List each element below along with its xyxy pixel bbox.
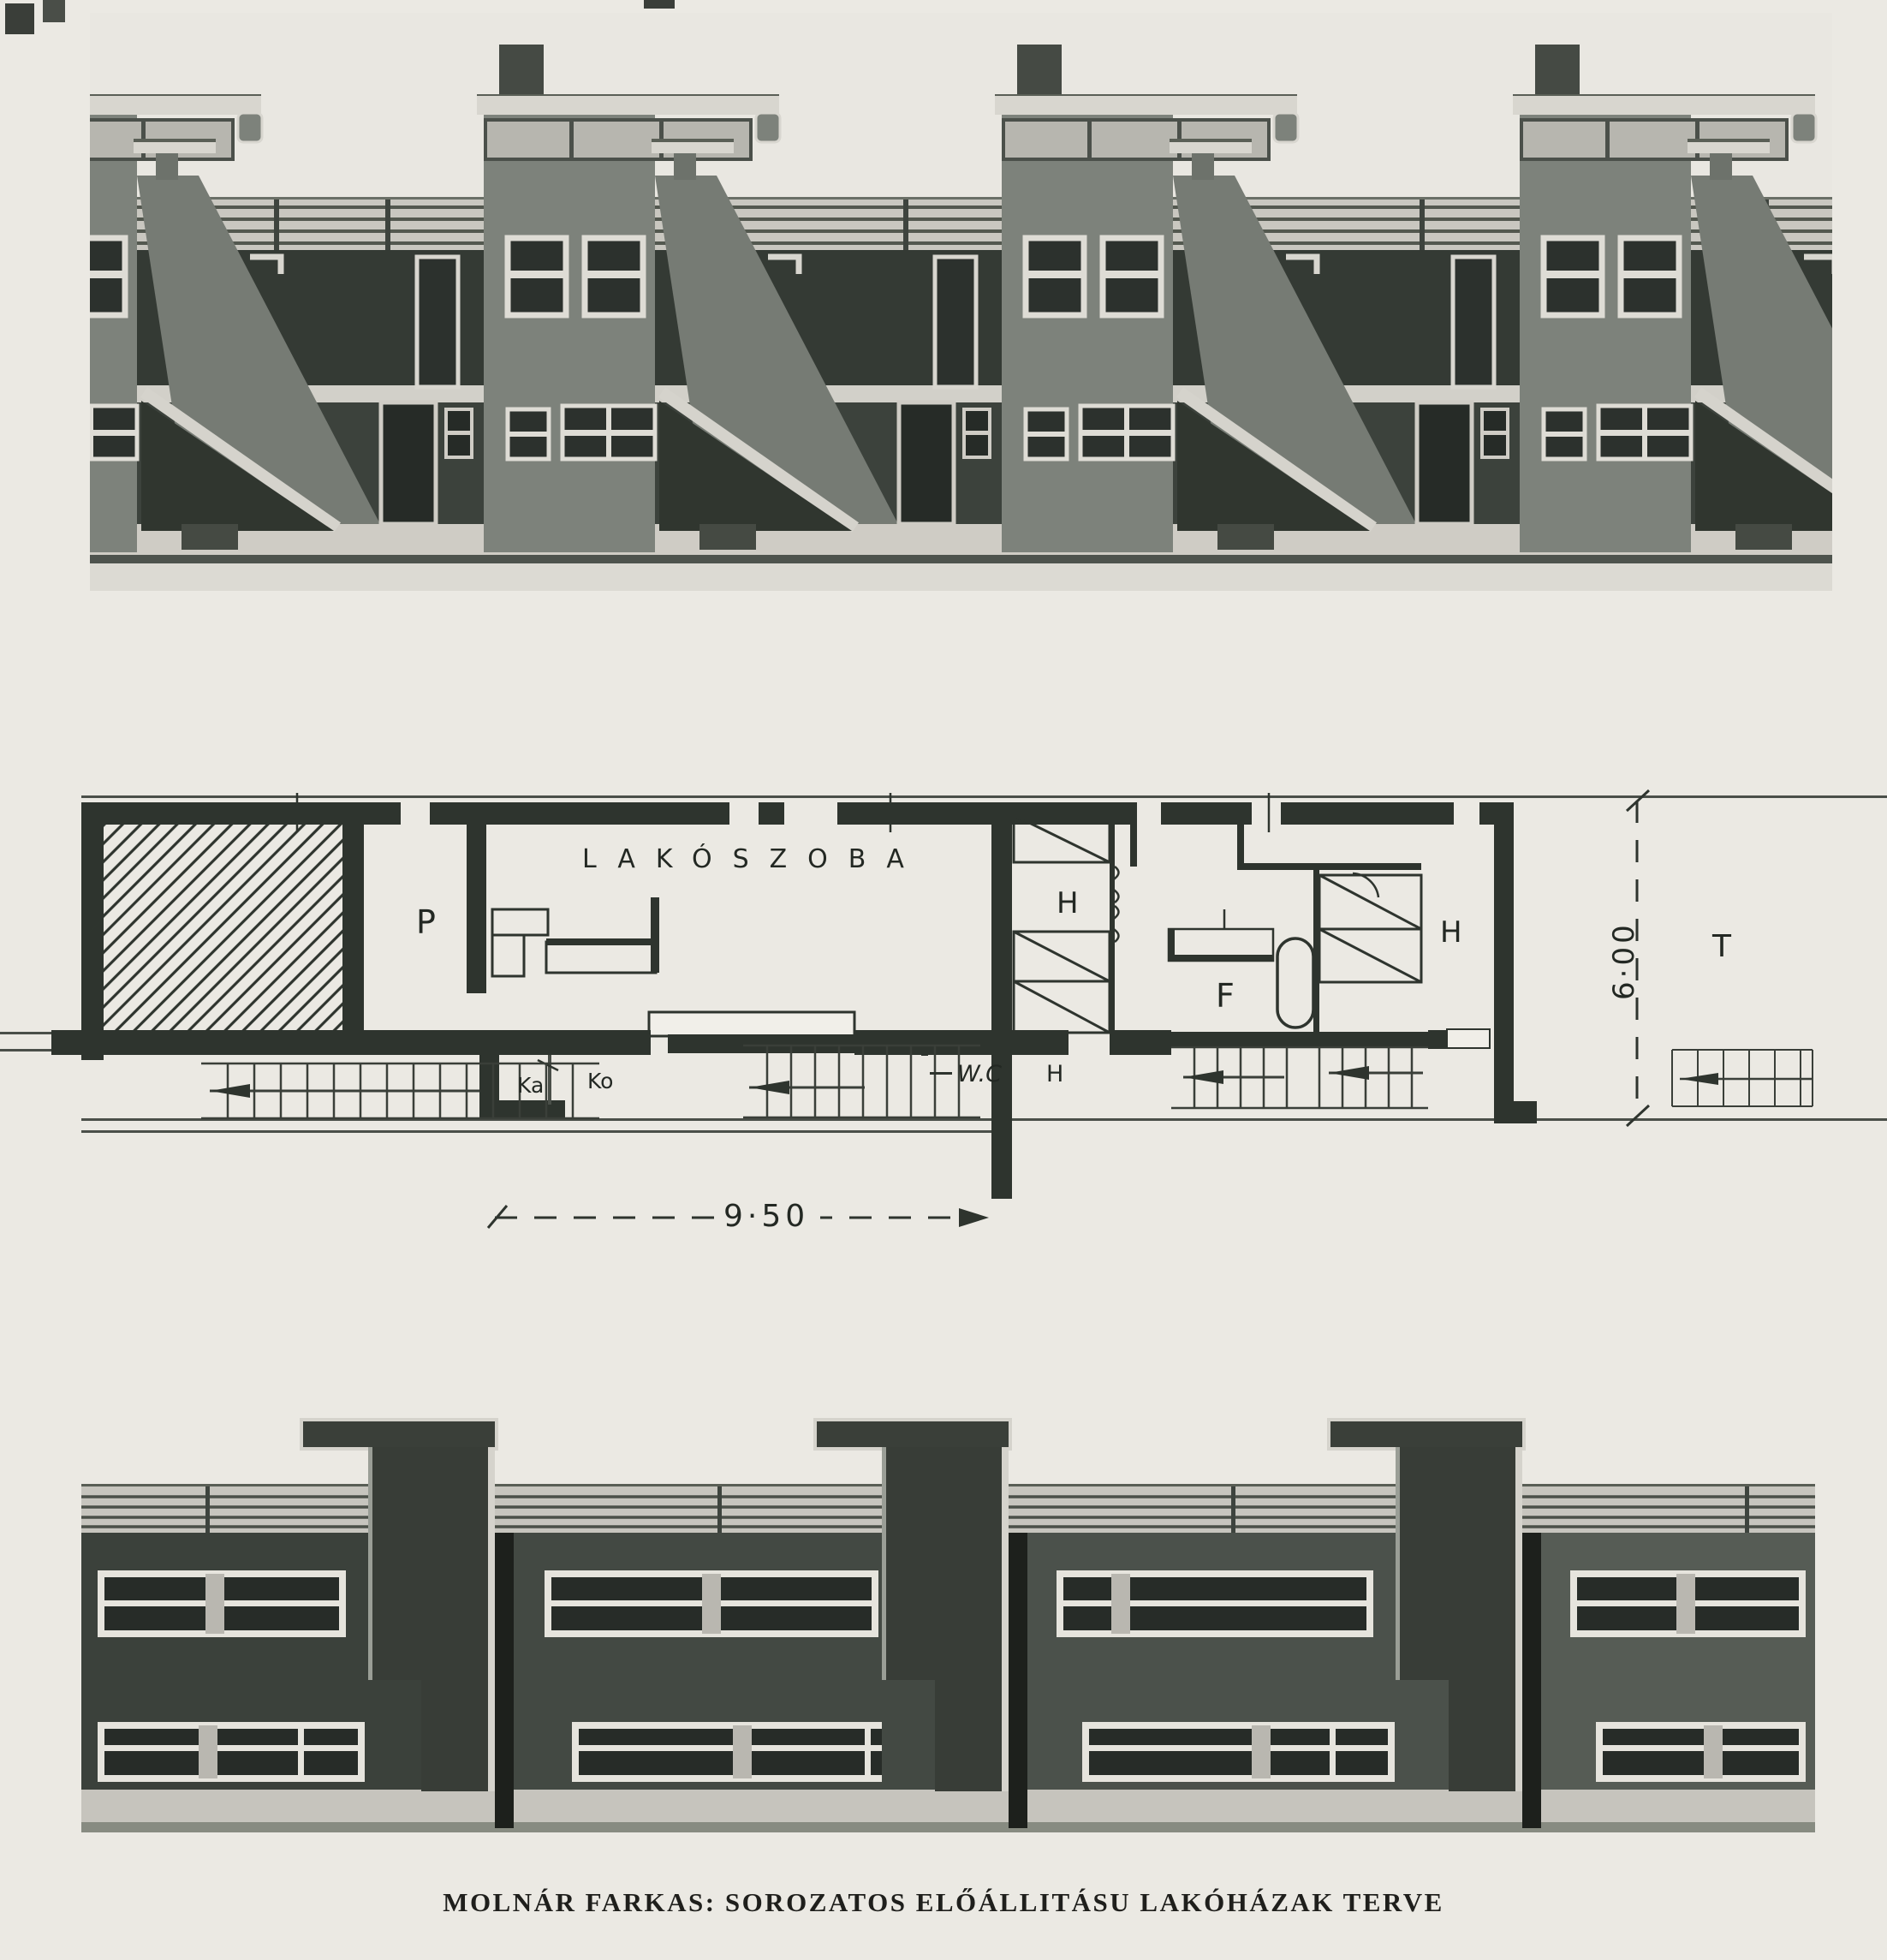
label-bedroom-right: H <box>1440 915 1462 950</box>
label-kitchen: Ko <box>587 1069 613 1093</box>
scanned-document-page: 9·50 6·00 LAKÓSZOBA P H F H H W.C Ka Ko … <box>0 0 1887 1960</box>
bottom-elevation-drawing <box>51 1420 1815 1832</box>
dimension-depth-label: 6·00 <box>1607 921 1641 1000</box>
stair-run <box>743 1046 980 1117</box>
dimension-9-50: 9·50 <box>488 1195 989 1234</box>
drawing-sheet: 9·50 6·00 LAKÓSZOBA P H F H H W.C Ka Ko … <box>0 0 1887 1960</box>
label-bathroom: F <box>1216 977 1235 1015</box>
hatched-area <box>88 820 342 1030</box>
dimension-width-label: 9·50 <box>723 1199 809 1234</box>
label-living-room: LAKÓSZOBA <box>582 843 925 874</box>
figure-caption: MOLNÁR FARKAS: SOROZATOS ELŐÁLLITÁSU LAK… <box>0 1887 1887 1918</box>
label-terrace: T <box>1711 929 1732 964</box>
label-wc: W.C <box>957 1061 1002 1087</box>
label-pantry: P <box>416 903 436 941</box>
label-hall: H <box>1046 1061 1063 1087</box>
top-elevation-drawing <box>0 13 1887 591</box>
floor-plan-drawing: 9·50 6·00 LAKÓSZOBA P H F H H W.C Ka Ko … <box>0 790 1887 1234</box>
dimension-6-00: 6·00 <box>1607 790 1649 1126</box>
label-bedroom-left: H <box>1057 886 1079 920</box>
label-entry: Ka <box>517 1073 544 1098</box>
